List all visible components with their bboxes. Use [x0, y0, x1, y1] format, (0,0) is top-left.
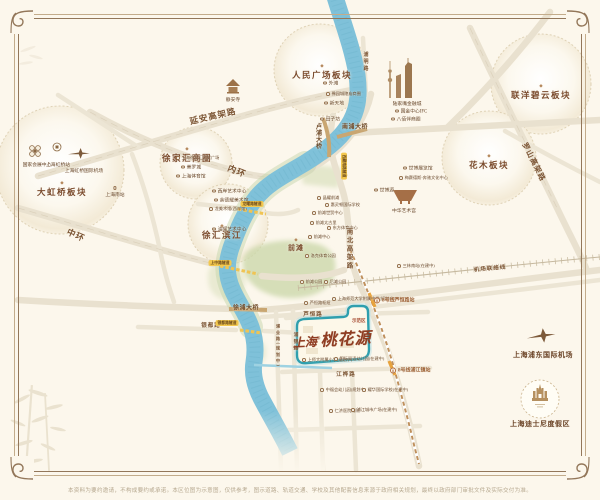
star-icon: ◆	[185, 147, 188, 151]
district-name: 花木板块	[469, 159, 509, 171]
poi-label: 中华艺术宫	[392, 207, 416, 214]
star-icon: ◆	[539, 84, 542, 88]
poi-dot-icon	[403, 166, 407, 170]
poi-dot-icon	[308, 235, 312, 239]
poi: 陆家嘴金融城	[393, 100, 422, 107]
project-name: 桃花源	[320, 330, 372, 350]
road-name: 芦恒路	[303, 312, 323, 318]
road-name: 浦业路(规划中)	[276, 324, 281, 368]
poi: 世博展览馆	[403, 165, 433, 172]
poi-dot-icon	[320, 117, 324, 121]
road-label: 罗山高架路	[519, 141, 548, 184]
poi-label: 示范区	[352, 318, 366, 324]
poi-dot-icon	[325, 203, 329, 207]
poi-label: 前滩公园	[306, 279, 323, 285]
poi: 上海体育馆	[176, 173, 206, 180]
map-disclaimer: 本资料为要约邀请，不构成要约或承诺。本区位图为示意图，仅供参考，图示道路、轨道交…	[0, 486, 600, 494]
poi-label: 美罗城	[187, 164, 201, 171]
poi-label: 上海迪士尼度假区	[510, 419, 570, 429]
poi: 八佰伴商圈	[391, 116, 421, 123]
frame-corner-ornament	[8, 456, 34, 482]
poi: 田子坊	[320, 116, 340, 123]
poi-label: 后滩公园	[330, 279, 347, 285]
poi: 浦江城市广场(在建中)	[351, 407, 397, 413]
poi-label: 惠灵顿国际学校	[331, 202, 360, 208]
poi-dot-icon	[326, 92, 330, 96]
poi-dot-icon	[397, 264, 401, 268]
poi: 上海浦东国际机场	[513, 350, 573, 360]
metro-station-label: 88号线芦恒路站	[374, 297, 415, 304]
frame-corner-ornament	[8, 8, 34, 34]
poi-label: 陆家嘴金融城	[393, 100, 422, 107]
poi: 耀华国际学校(在建中)	[362, 387, 408, 393]
district-label: ◆联洋碧云板块	[511, 84, 571, 101]
poi: 前滩中心	[308, 234, 330, 240]
poi-label: 国际双语幼儿园(在建中)	[340, 356, 385, 362]
project-marker: 上海®桃花源	[292, 324, 372, 352]
poi-label: 上海浦东国际机场	[513, 350, 573, 360]
road-label: 徐浦大桥	[233, 303, 259, 312]
poi-label: 上海南站	[105, 191, 124, 198]
poi-label: 上海虹桥国际机场	[65, 167, 103, 174]
poi-dot-icon	[305, 254, 309, 258]
tunnel-badge: 银都路隧道	[216, 320, 239, 326]
poi: 西岸艺术中心	[212, 188, 246, 195]
poi-dot-icon	[323, 81, 327, 85]
poi-dot-icon	[209, 207, 213, 211]
poi: 惠灵顿国际学校	[325, 202, 360, 208]
poi-dot-icon	[181, 165, 185, 169]
poi-label: 上海体育馆	[182, 173, 206, 180]
map-labels-layer: ◆大虹桥板块◆徐家汇商圈◆徐汇滨江◆人民广场板块◆联洋碧云板块◆花木板块◆前滩国…	[0, 0, 600, 500]
poi-label: 浦江城市广场(在建中)	[357, 407, 397, 413]
poi-dot-icon	[395, 109, 399, 113]
road-name: 南浦大桥	[342, 125, 368, 131]
poi: 油罐艺术中心	[212, 226, 246, 233]
road-name: 江桦路	[336, 372, 356, 378]
poi: 静安寺	[226, 96, 240, 103]
poi-dot-icon	[399, 176, 403, 180]
poi: 豫园城隍庙商圈	[326, 91, 361, 97]
poi-dot-icon	[304, 301, 308, 305]
road-name: 南北高架路	[345, 228, 352, 271]
road-label: 卢浦大桥	[314, 123, 323, 149]
poi-label: 世博源	[380, 187, 394, 194]
poi-dot-icon	[113, 186, 117, 190]
frame-corner-ornament	[566, 456, 592, 482]
poi: 前滩公园	[300, 279, 322, 285]
poi-dot-icon	[300, 280, 304, 284]
poi: 晶耀前滩	[317, 195, 339, 201]
poi: 上海南站	[105, 186, 124, 198]
district-label: ◆花木板块	[469, 154, 509, 171]
star-icon: ◆	[320, 64, 323, 68]
poi-label: 上海徐家汇国贸广场	[182, 155, 220, 161]
road-name: 浦明路	[363, 52, 368, 73]
poi-label: 西岸艺术中心	[218, 188, 247, 195]
poi-dot-icon	[391, 117, 395, 121]
poi-dot-icon	[329, 409, 333, 413]
poi-dot-icon	[176, 174, 180, 178]
poi-label: 田子坊	[326, 116, 340, 123]
poi-label: 芦恒路枢纽	[310, 300, 331, 306]
poi-label: 洛克体育公园	[311, 253, 336, 259]
district-label: ◆前滩	[288, 238, 304, 253]
poi-label: 三林南站(在建中)	[403, 263, 435, 269]
poi-dot-icon	[362, 388, 366, 392]
poi: 中华艺术宫	[392, 207, 416, 214]
poi-dot-icon	[212, 227, 216, 231]
road-label: 浦业路(规划中)	[275, 324, 281, 368]
metro-icon: 8	[390, 367, 396, 373]
road-name: 中环	[65, 227, 86, 244]
poi: 中福会幼儿园(规划中)	[320, 387, 366, 393]
poi: 上海虹桥国际机场	[65, 167, 103, 174]
district-name: 前滩	[288, 243, 304, 253]
poi-label: 静安寺	[226, 96, 240, 103]
location-map: ◆大虹桥板块◆徐家汇商圈◆徐汇滨江◆人民广场板块◆联洋碧云板块◆花木板块◆前滩国…	[0, 0, 600, 500]
poi-dot-icon	[327, 226, 331, 230]
poi: 国金中心IFC	[395, 108, 427, 115]
district-name: 联洋碧云板块	[511, 89, 571, 101]
district-label: ◆人民广场板块	[292, 64, 352, 81]
tunnel-name: 西藏南路隧道	[343, 155, 347, 178]
location-map-page: ◆大虹桥板块◆徐家汇商圈◆徐汇滨江◆人民广场板块◆联洋碧云板块◆花木板块◆前滩国…	[0, 0, 600, 500]
road-label: 内环	[226, 162, 248, 180]
poi: 外滩	[323, 80, 338, 87]
poi-label: 前滩世贸中心	[318, 210, 343, 216]
poi-label: 晶耀前滩	[323, 195, 340, 201]
poi: 美罗城	[181, 164, 201, 171]
road-label: 机场联络线	[473, 263, 506, 274]
star-icon: ◆	[60, 181, 63, 185]
poi: 示范区	[352, 318, 366, 324]
poi: 洛克体育公园	[305, 253, 336, 259]
poi-label: 耀华国际学校(在建中)	[368, 387, 408, 393]
station-name: 8号线浦江镇站	[398, 367, 431, 374]
poi-dot-icon	[176, 156, 180, 160]
poi: 后滩公园	[324, 279, 346, 285]
poi-dot-icon	[334, 357, 338, 361]
road-name: 机场联络线	[474, 265, 507, 274]
poi: 芦恒路枢纽	[304, 300, 331, 306]
poi-label: 新天地	[330, 100, 344, 107]
poi-dot-icon	[332, 297, 336, 301]
poi-dot-icon	[310, 221, 314, 225]
poi: 梅赛德斯-奔驰文化中心	[399, 175, 448, 181]
poi-dot-icon	[324, 280, 328, 284]
poi: 新天地	[324, 100, 344, 107]
poi-label: 梅赛德斯-奔驰文化中心	[405, 175, 448, 181]
poi: 前滩世贸中心	[312, 210, 343, 216]
poi: 国际双语幼儿园(在建中)	[334, 356, 384, 362]
project-name-prefix: 上海	[292, 335, 317, 350]
district-name: 人民广场板块	[292, 69, 352, 81]
road-label: 芦恒路	[303, 310, 323, 318]
road-label: 浦明路	[362, 52, 369, 73]
road-label: 南北高架路	[343, 228, 353, 271]
poi: 上海迪士尼度假区	[510, 419, 570, 429]
poi-label: 八佰伴商圈	[397, 116, 421, 123]
poi-dot-icon	[317, 196, 321, 200]
district-name: 大虹桥板块	[37, 186, 87, 198]
metro-station-label: 88号线浦江镇站	[390, 367, 431, 374]
poi: 上海徐家汇国贸广场	[176, 155, 219, 161]
poi-label: 前滩中心	[314, 234, 331, 240]
poi-label: 油罐艺术中心	[218, 226, 247, 233]
district-label: ◆大虹桥板块	[37, 181, 87, 198]
station-name: 8号线芦恒路站	[382, 297, 415, 304]
poi-dot-icon	[214, 198, 218, 202]
frame-corner-ornament	[566, 8, 592, 34]
poi: 三林南站(在建中)	[397, 263, 435, 269]
poi-dot-icon	[320, 388, 324, 392]
road-name: 徐浦大桥	[233, 306, 259, 312]
road-label: 南浦大桥	[342, 122, 368, 131]
poi-dot-icon	[312, 211, 316, 215]
road-name: 延安高架路	[189, 106, 238, 126]
road-name: 内环	[226, 163, 247, 179]
tunnel-badge: 龙耀路隧道	[241, 201, 264, 207]
tunnel-badge: 西藏南路隧道	[341, 153, 347, 180]
road-label: 江桦路	[336, 370, 356, 378]
poi-dot-icon	[212, 189, 216, 193]
road-name: 罗山高架路	[520, 141, 547, 183]
road-label: 延安高架路	[189, 105, 238, 127]
poi-dot-icon	[351, 408, 355, 412]
poi: 世博源	[374, 187, 394, 194]
poi-dot-icon	[302, 358, 306, 362]
poi-dot-icon	[374, 188, 378, 192]
poi-label: 国金中心IFC	[401, 108, 428, 115]
tunnel-name: 银都路隧道	[218, 321, 237, 325]
tunnel-badge: 上中路隧道	[209, 260, 232, 266]
tunnel-name: 龙耀路隧道	[243, 202, 262, 206]
metro-icon: 8	[374, 297, 380, 303]
poi-label: 豫园城隍庙商圈	[332, 91, 361, 97]
star-icon: ◆	[294, 238, 297, 242]
tunnel-name: 上中路隧道	[211, 261, 230, 265]
star-icon: ◆	[487, 154, 490, 158]
poi-label: 中福会幼儿园(规划中)	[326, 387, 366, 393]
poi-label: 世博展览馆	[409, 165, 433, 172]
road-name: 卢浦大桥	[315, 123, 321, 149]
road-label: 中环	[65, 226, 87, 245]
poi-dot-icon	[324, 101, 328, 105]
poi-label: 外滩	[329, 80, 339, 87]
